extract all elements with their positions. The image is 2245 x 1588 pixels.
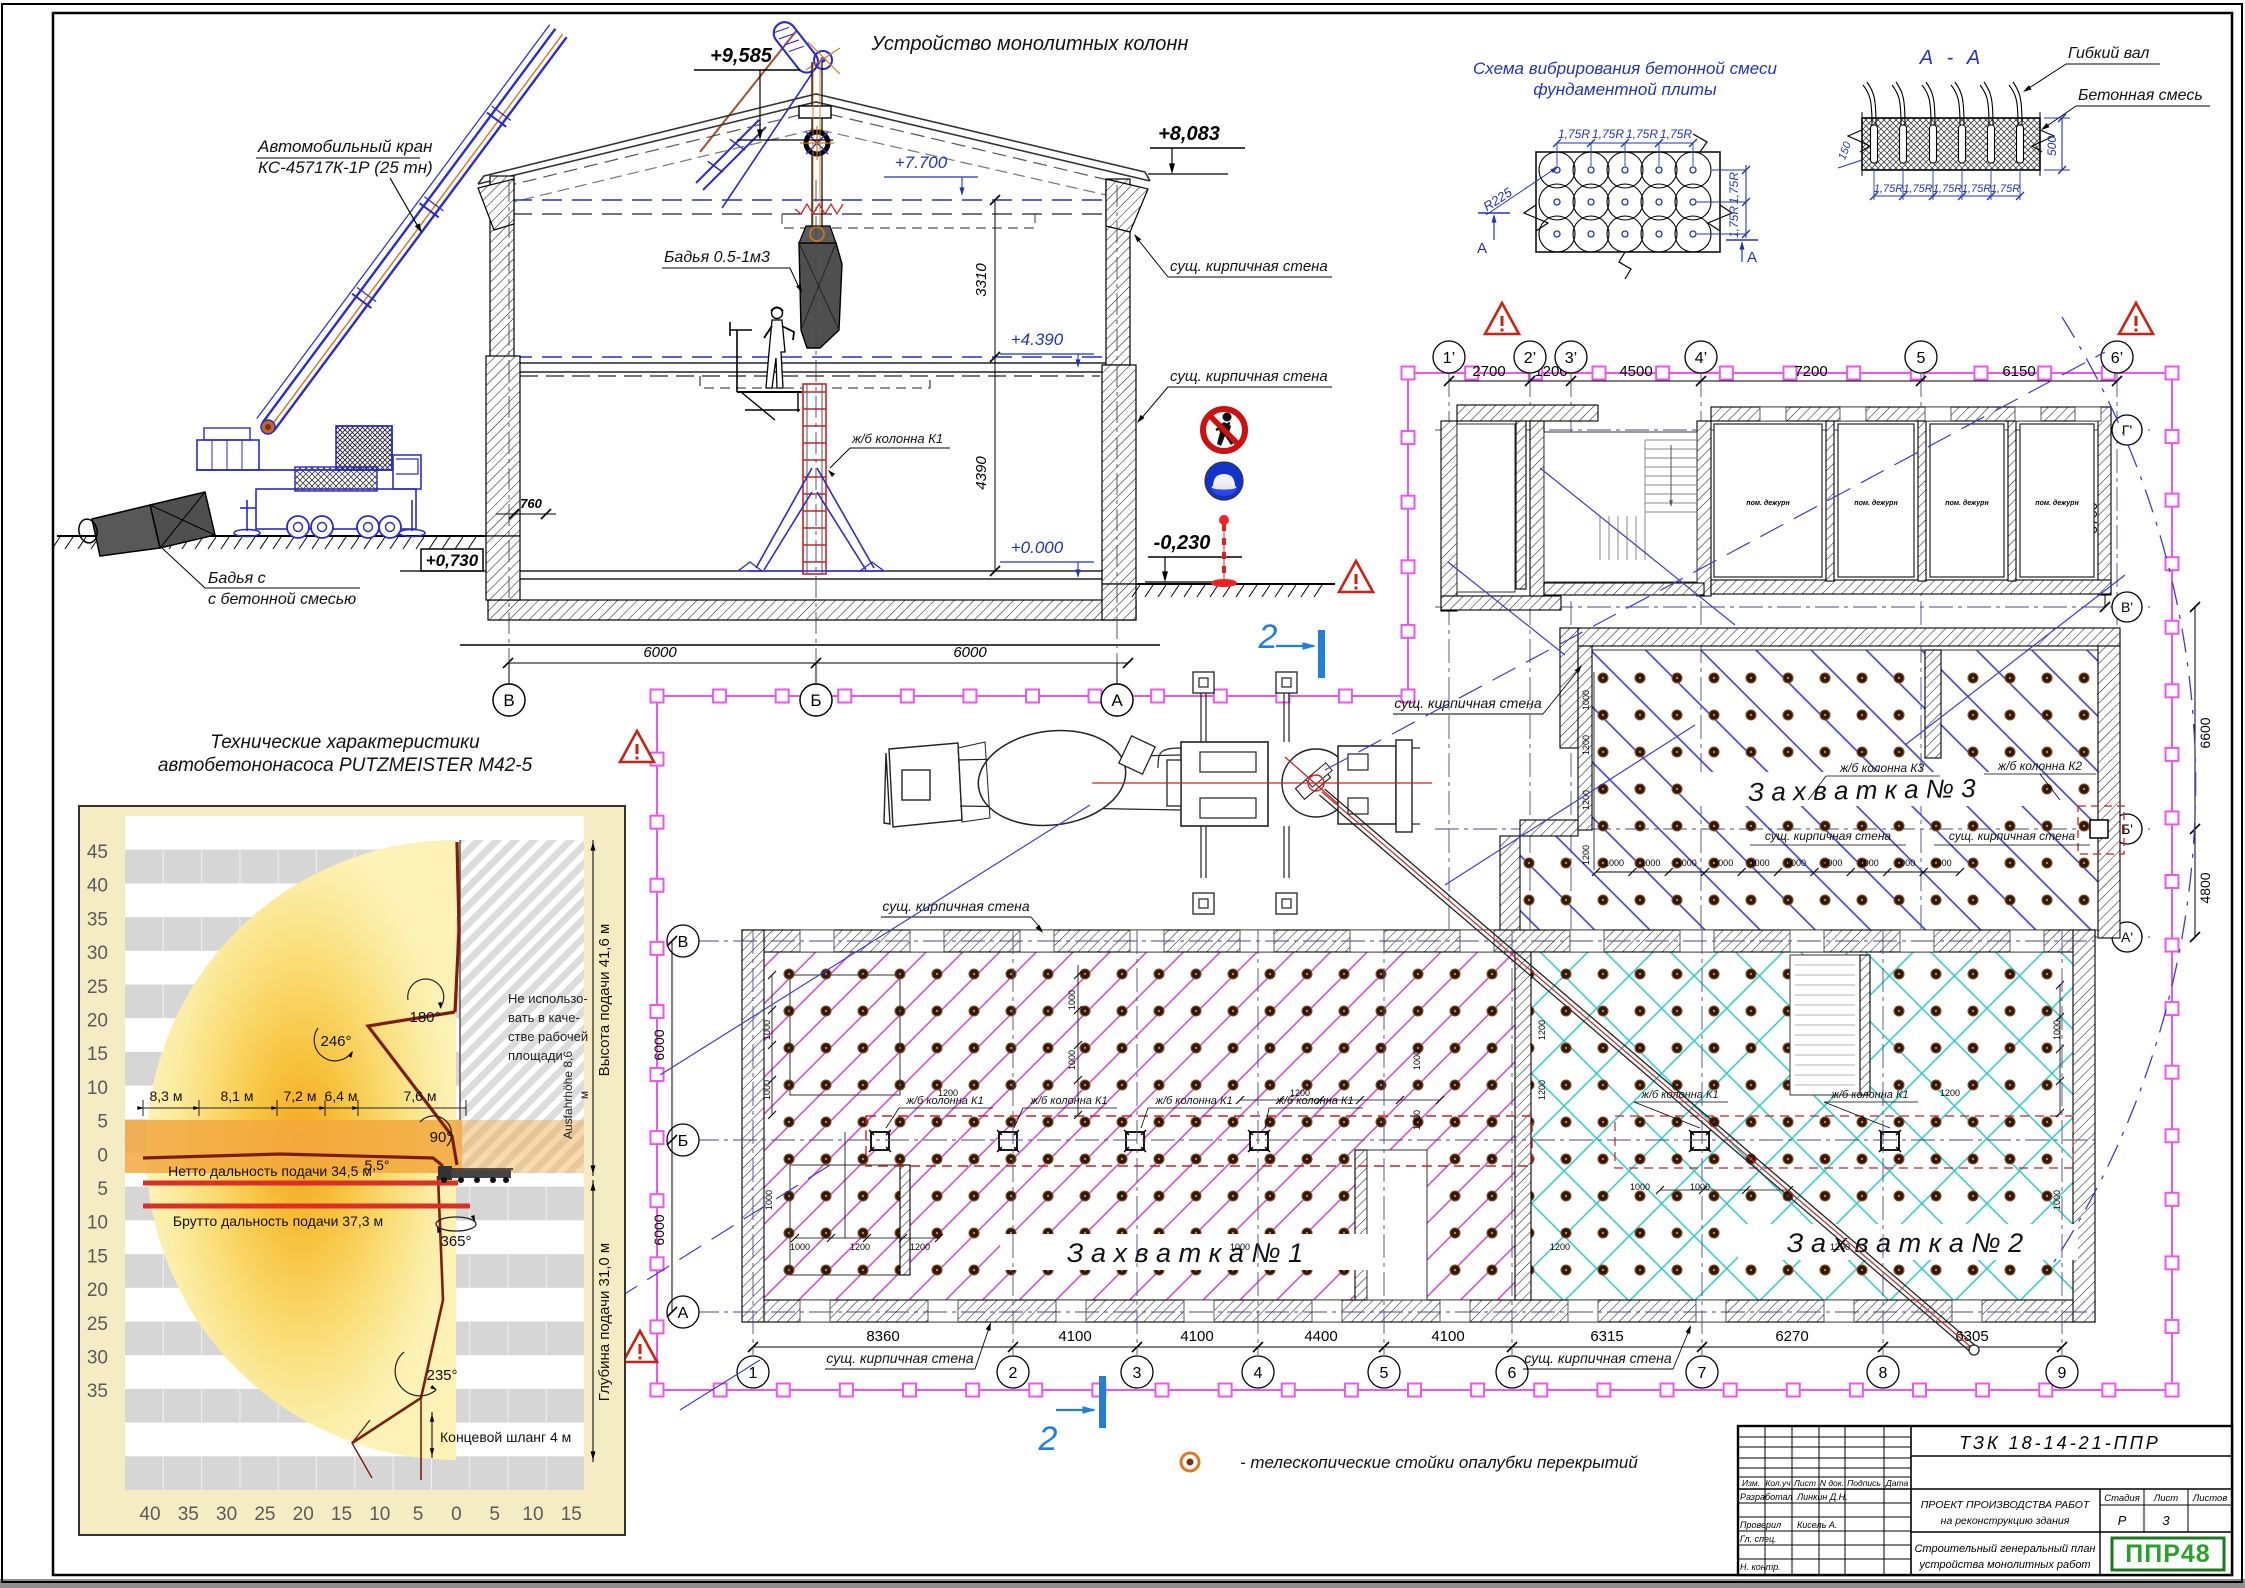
svg-text:10: 10: [87, 1078, 108, 1099]
svg-text:45: 45: [87, 842, 108, 863]
svg-text:Листов: Листов: [2192, 1493, 2228, 1504]
svg-text:- телескопические стойки опал: - телескопические стойки опалубки перекр…: [1240, 1453, 1638, 1472]
svg-text:5: 5: [489, 1504, 500, 1525]
svg-text:Лист: Лист: [2153, 1493, 2179, 1504]
svg-text:2700: 2700: [1472, 363, 1505, 380]
svg-text:30: 30: [216, 1504, 237, 1525]
svg-text:15: 15: [331, 1504, 352, 1525]
svg-text:10: 10: [87, 1213, 108, 1234]
svg-text:ж/б колонна К1: ж/б колонна К1: [1830, 1089, 1908, 1101]
svg-text:5: 5: [97, 1179, 108, 1200]
svg-text:Бетонная смесь: Бетонная смесь: [2078, 87, 2203, 104]
svg-text:8360: 8360: [866, 1328, 899, 1345]
svg-text:3: 3: [2162, 1513, 2170, 1528]
svg-text:А': А': [2121, 929, 2133, 945]
svg-text:180°: 180°: [409, 1009, 440, 1026]
svg-text:В: В: [678, 934, 689, 951]
svg-text:3’: 3’: [1565, 350, 1577, 367]
svg-text:10: 10: [522, 1504, 543, 1525]
svg-text:7,6 м: 7,6 м: [404, 1088, 437, 1104]
svg-text:1000: 1000: [2052, 1190, 2062, 1210]
svg-text:1000: 1000: [1640, 858, 1660, 868]
svg-text:35: 35: [87, 909, 108, 930]
svg-text:Технические характеристики: Технические характеристики: [210, 732, 480, 753]
svg-text:1000: 1000: [1604, 858, 1624, 868]
svg-text:ПРОЕКТ ПРОИЗВОДСТВА РАБОТ: ПРОЕКТ ПРОИЗВОДСТВА РАБОТ: [1921, 1499, 2091, 1511]
svg-text:на реконструкцию здания: на реконструкцию здания: [1941, 1515, 2070, 1527]
svg-text:4400: 4400: [1304, 1328, 1337, 1345]
svg-text:500: 500: [2045, 136, 2059, 156]
svg-text:1,75R: 1,75R: [1874, 183, 1903, 195]
svg-text:6000: 6000: [953, 644, 987, 661]
svg-text:1200: 1200: [910, 1242, 930, 1252]
svg-text:Кисель А.: Кисель А.: [1797, 1520, 1837, 1530]
svg-text:1200: 1200: [1290, 1088, 1310, 1098]
svg-text:сущ. кирпичная стена: сущ. кирпичная стена: [1949, 829, 2076, 843]
svg-text:+0.000: +0.000: [1011, 538, 1064, 557]
svg-text:Ausfahrhöhe 8,6: Ausfahrhöhe 8,6: [561, 1051, 575, 1139]
svg-text:235°: 235°: [426, 1367, 457, 1384]
svg-text:Кол.уч: Кол.уч: [1765, 1478, 1791, 1488]
svg-text:вать в каче-: вать в каче-: [508, 1010, 580, 1025]
svg-text:1: 1: [749, 1365, 758, 1382]
svg-text:30: 30: [87, 943, 108, 964]
svg-text:1,75R: 1,75R: [1626, 127, 1658, 141]
svg-text:6600: 6600: [2197, 717, 2213, 748]
svg-text:20: 20: [87, 1011, 108, 1032]
svg-text:Н. контр.: Н. контр.: [1740, 1562, 1781, 1572]
svg-text:7: 7: [1698, 1365, 1707, 1382]
svg-text:3: 3: [1133, 1365, 1142, 1382]
svg-text:8,3 м: 8,3 м: [150, 1088, 183, 1104]
svg-text:1,75R: 1,75R: [1962, 183, 1991, 195]
svg-text:1,75R: 1,75R: [1933, 183, 1962, 195]
svg-text:1000: 1000: [1581, 690, 1591, 710]
svg-text:ж/б колонна К1: ж/б колонна К1: [1640, 1089, 1718, 1101]
svg-text:6’: 6’: [2111, 350, 2123, 367]
svg-text:ж/б колонна К1: ж/б колонна К1: [1275, 1095, 1353, 1107]
svg-text:1000: 1000: [1677, 858, 1697, 868]
svg-text:1200: 1200: [938, 1088, 958, 1098]
svg-text:1000: 1000: [762, 1020, 772, 1040]
svg-text:5: 5: [413, 1504, 424, 1525]
svg-text:Нетто дальность подачи 34,5 м: Нетто дальность подачи 34,5 м: [168, 1163, 372, 1179]
svg-text:+7.700: +7.700: [895, 153, 948, 172]
svg-text:2: 2: [1258, 618, 1278, 656]
svg-text:40: 40: [87, 876, 108, 897]
svg-text:4: 4: [1254, 1365, 1263, 1382]
svg-text:1,75R: 1,75R: [1727, 206, 1741, 238]
svg-text:1000: 1000: [1690, 1182, 1710, 1192]
svg-text:В': В': [2121, 599, 2133, 615]
svg-text:Изм.: Изм.: [1742, 1478, 1760, 1488]
svg-text:Б: Б: [678, 1133, 689, 1150]
svg-text:4100: 4100: [1180, 1328, 1213, 1345]
svg-text:ТЗК 18-14-21-ППР: ТЗК 18-14-21-ППР: [1959, 1433, 2161, 1453]
svg-text:4500: 4500: [1619, 363, 1652, 380]
svg-text:1200: 1200: [1940, 1088, 1960, 1098]
svg-text:Бадья с: Бадья с: [208, 570, 266, 587]
svg-text:5: 5: [1917, 350, 1926, 367]
svg-text:1000: 1000: [1412, 1050, 1422, 1070]
svg-text:КС-45717К-1Р (25 тн): КС-45717К-1Р (25 тн): [258, 158, 433, 177]
svg-text:сущ. кирпичная стена: сущ. кирпичная стена: [1170, 368, 1328, 385]
svg-text:Р: Р: [2118, 1513, 2127, 1528]
svg-text:Строительный генеральный план: Строительный генеральный план: [1914, 1543, 2095, 1555]
svg-text:пом. дежурн: пом. дежурн: [1746, 499, 1790, 507]
svg-text:1000: 1000: [1859, 858, 1879, 868]
svg-text:1000: 1000: [1895, 858, 1915, 868]
svg-text:1000: 1000: [762, 1080, 772, 1100]
svg-text:фундаментной плиты: фундаментной плиты: [1533, 80, 1717, 99]
svg-text:1,75R: 1,75R: [1558, 127, 1590, 141]
svg-text:4800: 4800: [2197, 872, 2213, 903]
svg-text:Дата: Дата: [1885, 1478, 1909, 1488]
svg-text:1,75R: 1,75R: [1660, 127, 1692, 141]
svg-text:3310: 3310: [973, 263, 990, 297]
svg-text:1000: 1000: [1630, 1182, 1650, 1192]
svg-text:Стадия: Стадия: [2104, 1493, 2140, 1504]
svg-text:А: А: [1477, 240, 1487, 257]
svg-text:25: 25: [87, 1314, 108, 1335]
svg-text:с бетонной смесью: с бетонной смесью: [208, 591, 356, 608]
svg-text:З а х в а т к а № 1: З а х в а т к а № 1: [1067, 1238, 1303, 1268]
svg-text:Бадья 0.5-1м3: Бадья 0.5-1м3: [664, 249, 770, 266]
svg-text:40: 40: [139, 1504, 160, 1525]
svg-text:365°: 365°: [440, 1233, 471, 1250]
svg-text:1000: 1000: [1067, 1050, 1077, 1070]
svg-text:25: 25: [254, 1504, 275, 1525]
svg-text:Разработал: Разработал: [1740, 1492, 1792, 1502]
svg-text:-0,230: -0,230: [1154, 532, 1211, 554]
svg-text:сущ. кирпичная стена: сущ. кирпичная стена: [1524, 1350, 1671, 1366]
svg-text:Высота подачи 41,6 м: Высота подачи 41,6 м: [596, 924, 613, 1077]
svg-text:1’: 1’: [1443, 350, 1455, 367]
svg-text:ППР48: ППР48: [2125, 1540, 2210, 1568]
svg-text:1,75R: 1,75R: [1727, 172, 1741, 204]
svg-text:З а х в а т к а № 2: З а х в а т к а № 2: [1787, 1228, 2023, 1258]
svg-text:Линкин Д.Н.: Линкин Д.Н.: [1796, 1492, 1848, 1502]
svg-text:+4.390: +4.390: [1011, 330, 1064, 349]
svg-text:Проверил: Проверил: [1740, 1520, 1781, 1530]
svg-text:1000: 1000: [2052, 1020, 2062, 1040]
svg-text:6270: 6270: [1775, 1328, 1808, 1345]
svg-text:7200: 7200: [1794, 363, 1827, 380]
svg-text:5: 5: [1380, 1365, 1389, 1382]
svg-text:6315: 6315: [1590, 1328, 1623, 1345]
svg-text:5: 5: [97, 1112, 108, 1133]
svg-text:Концевой шланг 4 м: Концевой шланг 4 м: [440, 1429, 571, 1445]
svg-text:автобетононасоса PUTZMEISTER М: автобетононасоса PUTZMEISTER М42-5: [158, 755, 533, 776]
svg-text:1,75R: 1,75R: [1592, 127, 1624, 141]
svg-text:сущ. кирпичная стена: сущ. кирпичная стена: [1765, 829, 1892, 843]
svg-text:1000: 1000: [1067, 990, 1077, 1010]
svg-text:А - А: А - А: [1919, 47, 1984, 69]
svg-text:А: А: [1747, 249, 1757, 266]
svg-text:7,2 м: 7,2 м: [284, 1088, 317, 1104]
svg-text:Гл. спец.: Гл. спец.: [1740, 1534, 1777, 1544]
svg-text:1000: 1000: [790, 1242, 810, 1252]
svg-text:стве рабочей: стве рабочей: [508, 1029, 588, 1044]
svg-text:35: 35: [87, 1381, 108, 1402]
svg-text:1000: 1000: [764, 1190, 774, 1210]
svg-text:1000: 1000: [1750, 858, 1770, 868]
svg-text:1000: 1000: [1786, 858, 1806, 868]
svg-text:сущ. кирпичная стена: сущ. кирпичная стена: [1394, 695, 1541, 711]
svg-text:1000: 1000: [1713, 858, 1733, 868]
svg-text:1000: 1000: [1412, 1110, 1422, 1130]
svg-text:Гибкий вал: Гибкий вал: [2068, 45, 2149, 62]
svg-text:пом. дежурн: пом. дежурн: [1854, 499, 1898, 507]
svg-text:В: В: [503, 691, 514, 710]
svg-text:Подпись: Подпись: [1847, 1478, 1881, 1488]
svg-text:ж/б колонна К1: ж/б колонна К1: [851, 431, 943, 446]
svg-text:2’: 2’: [1524, 350, 1536, 367]
svg-text:35: 35: [178, 1504, 199, 1525]
svg-text:ж/б колонна К1: ж/б колонна К1: [1154, 1095, 1232, 1107]
svg-text:6000: 6000: [643, 644, 677, 661]
svg-text:6: 6: [1508, 1365, 1517, 1382]
svg-text:6150: 6150: [2002, 363, 2035, 380]
svg-text:1000: 1000: [1822, 858, 1842, 868]
svg-text:15: 15: [87, 1044, 108, 1065]
svg-text:25: 25: [87, 977, 108, 998]
svg-text:З а х в а т к а № 3: З а х в а т к а № 3: [1748, 773, 1977, 807]
svg-text:пом. дежурн: пом. дежурн: [2035, 499, 2079, 507]
svg-text:1,75R: 1,75R: [1991, 183, 2020, 195]
svg-text:6,4 м: 6,4 м: [325, 1088, 358, 1104]
svg-text:15: 15: [87, 1246, 108, 1267]
svg-text:Б': Б': [2121, 821, 2133, 837]
svg-text:15: 15: [561, 1504, 582, 1525]
svg-text:сущ. кирпичная стена: сущ. кирпичная стена: [826, 1350, 973, 1366]
svg-text:Автомобильный кран: Автомобильный кран: [257, 137, 433, 156]
svg-text:6000: 6000: [651, 1029, 667, 1060]
svg-text:90°: 90°: [430, 1129, 453, 1146]
svg-text:0: 0: [97, 1145, 108, 1166]
svg-text:ж/б колонна К2: ж/б колонна К2: [1997, 759, 2082, 773]
svg-text:20: 20: [87, 1280, 108, 1301]
svg-text:10: 10: [369, 1504, 390, 1525]
svg-text:Б: Б: [810, 691, 821, 710]
svg-text:Не использо-: Не использо-: [508, 991, 588, 1006]
svg-text:пом. дежурн: пом. дежурн: [1945, 499, 1989, 507]
svg-text:Лист: Лист: [1793, 1478, 1816, 1488]
svg-text:устройства монолитных работ: устройства монолитных работ: [1918, 1559, 2090, 1571]
svg-text:1000: 1000: [1230, 1242, 1250, 1252]
svg-text:А: А: [678, 1305, 689, 1322]
svg-text:4100: 4100: [1058, 1328, 1091, 1345]
svg-text:Устройство монолитных колонн: Устройство монолитных колонн: [871, 33, 1189, 55]
svg-text:4’: 4’: [1695, 350, 1707, 367]
svg-text:1200: 1200: [1537, 1020, 1547, 1040]
svg-text:ж/б колонна К3: ж/б колонна К3: [1839, 761, 1924, 775]
svg-text:30: 30: [87, 1348, 108, 1369]
svg-text:1200: 1200: [1581, 845, 1591, 865]
svg-text:м: м: [577, 1091, 591, 1099]
svg-text:сущ. кирпичная стена: сущ. кирпичная стена: [1170, 258, 1328, 275]
svg-text:+0,730: +0,730: [426, 551, 479, 570]
svg-text:1200: 1200: [1581, 735, 1591, 755]
svg-text:0: 0: [451, 1504, 462, 1525]
svg-text:6000: 6000: [651, 1214, 667, 1245]
svg-text:1200: 1200: [850, 1242, 870, 1252]
svg-text:8,1 м: 8,1 м: [221, 1088, 254, 1104]
svg-text:Брутто дальность подачи 37,3 м: Брутто дальность подачи 37,3 м: [173, 1213, 383, 1229]
svg-text:8: 8: [1879, 1365, 1888, 1382]
svg-text:4390: 4390: [973, 456, 990, 490]
svg-text:сущ. кирпичная стена: сущ. кирпичная стена: [882, 898, 1029, 914]
svg-text:1,75R: 1,75R: [1903, 183, 1932, 195]
svg-text:N док.: N док.: [1820, 1478, 1844, 1488]
svg-text:9: 9: [2058, 1365, 2067, 1382]
svg-text:Глубина подачи 31,0 м: Глубина подачи 31,0 м: [596, 1243, 613, 1401]
svg-text:Схема вибрирования бетонной см: Схема вибрирования бетонной смеси: [1473, 59, 1777, 78]
svg-text:2: 2: [1038, 1420, 1058, 1458]
svg-text:площади: площади: [508, 1048, 563, 1063]
svg-text:1200: 1200: [1550, 1242, 1570, 1252]
svg-text:20: 20: [293, 1504, 314, 1525]
svg-text:1200: 1200: [1537, 1080, 1547, 1100]
svg-text:+8,083: +8,083: [1158, 123, 1220, 145]
svg-text:2: 2: [1009, 1365, 1018, 1382]
svg-text:+9,585: +9,585: [710, 45, 773, 67]
svg-text:А: А: [1111, 691, 1123, 710]
svg-text:4100: 4100: [1431, 1328, 1464, 1345]
svg-text:1000: 1000: [1932, 858, 1952, 868]
svg-text:760: 760: [520, 496, 542, 511]
svg-text:246°: 246°: [320, 1033, 351, 1050]
svg-text:ж/б колонна К1: ж/б колонна К1: [1029, 1095, 1107, 1107]
